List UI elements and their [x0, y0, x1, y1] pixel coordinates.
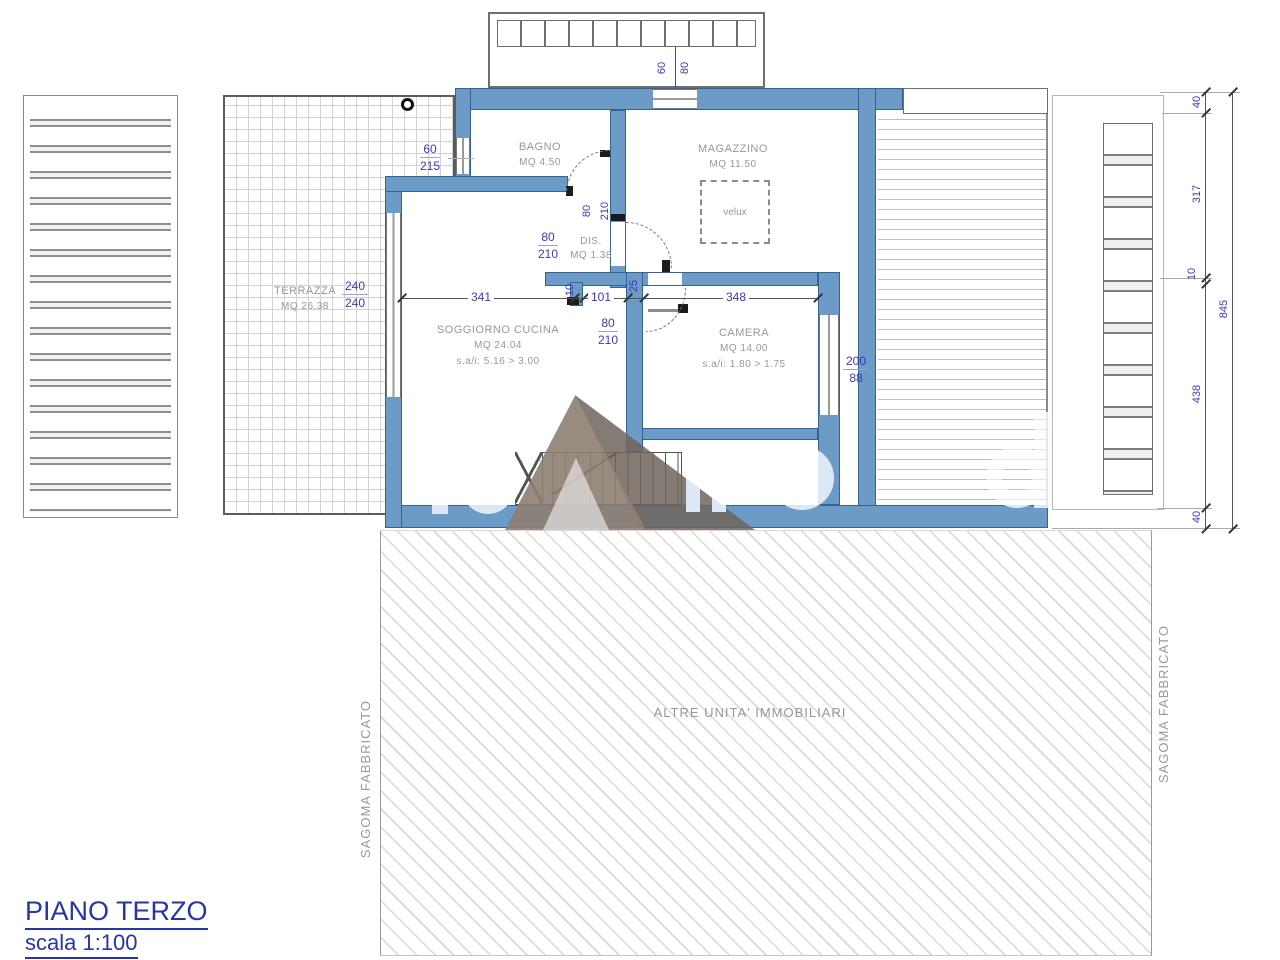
camera-door-dim: 80 210: [598, 316, 618, 347]
sagoma-fabbricato-right-label: SAGOMA FABBRICATO: [1156, 625, 1171, 783]
bagno-window: [456, 138, 470, 174]
dim-numerator: 200: [843, 354, 869, 370]
room-name: DIS.: [560, 235, 622, 249]
wall-right-outer: [858, 88, 876, 528]
room-name: CAMERA: [682, 325, 806, 341]
dim-numerator: 240: [342, 279, 368, 295]
altre-unita-hatch-area: [380, 530, 1152, 956]
balcony-door-width-dim: 60: [656, 51, 668, 85]
dim-438: 438: [1191, 377, 1203, 411]
watermark-glyph: [686, 452, 700, 512]
dim-denominator: 210: [538, 246, 558, 261]
dim-numerator: 60: [420, 142, 440, 158]
dim-leader-line: [448, 158, 474, 159]
dim-denominator: 240: [342, 295, 368, 310]
room-name: MAGAZZINO: [678, 141, 788, 157]
room-name: SOGGIORNO CUCINA: [428, 322, 568, 338]
dim-10: 10: [564, 273, 576, 307]
wall-terrazza-edge: [385, 176, 568, 192]
balcony-door-height-dim: 80: [679, 51, 691, 85]
soggiorno-terrazza-window: [386, 213, 401, 397]
dim-341: 341: [468, 290, 494, 304]
dim-denominator: 210: [598, 332, 618, 347]
camera-door-opening: [648, 273, 682, 285]
dim-317: 317: [1191, 177, 1203, 211]
room-name: BAGNO: [490, 139, 590, 155]
room-area: MQ 26.38: [255, 299, 355, 315]
balcony-railing: [497, 20, 756, 47]
dim-extension-line: [1052, 528, 1240, 529]
room-name: TERRAZZA: [255, 283, 355, 299]
dim-numerator: 80: [538, 230, 558, 246]
bagno-door-width-dim: 80: [581, 194, 593, 228]
dim-chain-line-right: [1205, 92, 1206, 529]
dis-label: DIS. MQ 1.38: [560, 235, 622, 263]
dim-845-total: 845: [1218, 292, 1230, 326]
dim-348: 348: [723, 290, 749, 304]
watermark-glyph: [1034, 412, 1049, 508]
dim-101: 101: [588, 290, 614, 304]
altre-unita-label: ALTRE UNITA' IMMOBILIARI: [640, 705, 860, 721]
dis-door-dim: 80 210: [538, 230, 558, 261]
dim-numerator: 80: [598, 316, 618, 332]
plan-title: PIANO TERZO: [25, 896, 208, 930]
magazzino-door-jamb: [611, 214, 625, 221]
room-heights: s.a/i: 1.80 > 1.75: [682, 357, 806, 373]
sagoma-fabbricato-left-label: SAGOMA FABBRICATO: [358, 700, 373, 858]
room-area: MQ 24.04: [428, 338, 568, 354]
magazzino-label: MAGAZZINO MQ 11.50: [678, 141, 788, 173]
right-ladder-strip: [1103, 123, 1153, 495]
watermark-glyph: [770, 446, 834, 510]
terrazza-label: TERRAZZA MQ 26.38: [255, 283, 355, 315]
wall-camera-bottom: [642, 428, 818, 440]
louver-bars: [30, 101, 171, 512]
camera-window: [819, 315, 839, 415]
room-area: MQ 1.38: [560, 249, 622, 263]
velux-skylight: velux: [700, 180, 770, 244]
dim-40-top: 40: [1191, 85, 1203, 119]
watermark-glyph: [712, 452, 726, 512]
dim-denominator: 215: [420, 158, 440, 173]
room-area: MQ 14.00: [682, 341, 806, 357]
left-roof-louver-area: [23, 95, 178, 518]
velux-label: velux: [723, 207, 746, 218]
balcony-door-window: [653, 89, 697, 109]
room-heights: s.a/i: 5.16 > 3.00: [428, 354, 568, 370]
dim-total-line-right: [1232, 92, 1233, 529]
bagno-window-dim: 60 215: [420, 142, 440, 173]
terrazza-window-dim: 240 240: [342, 279, 368, 310]
room-area: MQ 4.50: [490, 155, 590, 171]
right-roof-top-box: [903, 88, 1048, 114]
camera-label: CAMERA MQ 14.00 s.a/i: 1.80 > 1.75: [682, 325, 806, 373]
bagno-door-height-dim: 210: [599, 194, 611, 228]
dim-10-right: 10: [1186, 257, 1198, 291]
plan-scale: scala 1:100: [25, 930, 138, 959]
drain-circle-icon: [401, 98, 414, 111]
soggiorno-label: SOGGIORNO CUCINA MQ 24.04 s.a/i: 5.16 > …: [428, 322, 568, 370]
dim-denominator: 88: [843, 370, 869, 385]
dim-40-bottom: 40: [1191, 500, 1203, 534]
watermark-glyph: [432, 452, 448, 514]
bagno-label: BAGNO MQ 4.50: [490, 139, 590, 171]
room-area: MQ 11.50: [678, 157, 788, 173]
dim-25: 25: [628, 269, 640, 303]
floor-plan: SAGOMA FABBRICATO SAGOMA FABBRICATO ALTR…: [0, 0, 1280, 960]
camera-window-dim: 200 88: [843, 354, 869, 385]
